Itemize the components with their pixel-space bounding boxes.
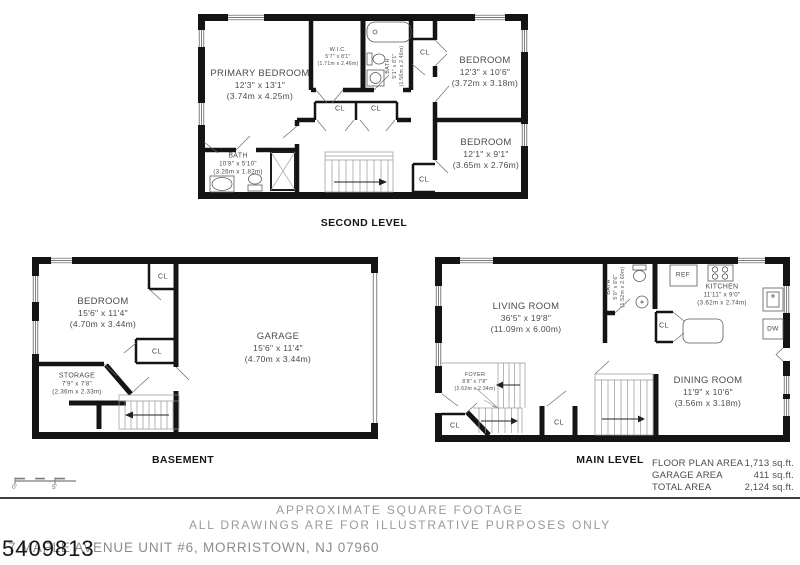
second-level-plan: PRIMARY BEDROOM 12'3" x 13'1" (3.74m x 4…	[198, 14, 528, 206]
room-label-storage: STORAGE 7'9" x 7'8" (2.36m x 2.33m)	[52, 371, 102, 396]
stairs-icon	[119, 395, 179, 429]
room-dim-ft: 12'3" x 10'6"	[452, 67, 518, 78]
doors	[442, 299, 684, 414]
room-name: BEDROOM	[453, 137, 519, 149]
room-label-garage: GARAGE 15'6" x 11'4" (4.70m x 3.44m)	[245, 331, 311, 365]
room-dim-m: (4.70m x 3.44m)	[245, 354, 311, 365]
room-label-bedroom: BEDROOM 15'6" x 11'4" (4.70m x 3.44m)	[70, 296, 136, 330]
room-label-bedroom-ne: BEDROOM 12'3" x 10'6" (3.72m x 3.18m)	[452, 55, 518, 89]
room-name: GARAGE	[245, 331, 311, 343]
room-name: LIVING ROOM	[491, 301, 562, 313]
outer-walls	[36, 261, 375, 436]
room-dim-m: (1.56m x 2.46m)	[399, 46, 406, 87]
closet-label: CL	[371, 106, 381, 113]
second-level-plan-drawing	[198, 14, 528, 206]
basement-title: BASEMENT	[83, 454, 283, 466]
room-name: FOYER	[455, 372, 496, 379]
area-label: TOTAL AREA	[652, 482, 711, 494]
room-dim-ft: 36'5" x 19'8"	[491, 313, 562, 324]
area-label: GARAGE AREA	[652, 470, 723, 482]
fridge-label: REF	[676, 272, 690, 279]
room-dim-m: (3.65m x 2.76m)	[453, 160, 519, 171]
area-row: GARAGE AREA 411 sq.ft.	[652, 470, 794, 482]
closet-label: CL	[158, 274, 168, 281]
room-dim-m: (3.72m x 3.18m)	[452, 78, 518, 89]
room-name: BATH	[606, 267, 613, 308]
room-dim-ft: 11'9" x 10'6"	[674, 387, 743, 398]
room-dim-ft: 7'9" x 7'8"	[52, 380, 102, 388]
area-row: FLOOR PLAN AREA 1,713 sq.ft.	[652, 458, 794, 470]
room-label-living-room: LIVING ROOM 36'5" x 19'8" (11.09m x 6.00…	[491, 301, 562, 335]
room-dim-ft: 12'3" x 13'1"	[210, 80, 309, 91]
footer-divider	[0, 497, 800, 499]
basement-plan-drawing	[32, 257, 378, 439]
room-name: KITCHEN	[697, 282, 747, 291]
main-level-plan: LIVING ROOM 36'5" x 19'8" (11.09m x 6.00…	[435, 257, 790, 442]
area-summary: FLOOR PLAN AREA 1,713 sq.ft. GARAGE AREA…	[652, 458, 794, 494]
area-value: 2,124 sq.ft.	[745, 482, 794, 494]
scale-five-label: 5'	[52, 484, 57, 491]
room-label-primary-bedroom: PRIMARY BEDROOM 12'3" x 13'1" (3.74m x 4…	[210, 68, 309, 102]
room-label-foyer: FOYER 8'8" x 7'8" (2.62m x 2.34m)	[455, 372, 496, 392]
room-dim-m: (3.56m x 3.18m)	[674, 398, 743, 409]
room-dim-m: (2.36m x 2.33m)	[52, 389, 102, 397]
room-label-bath-upper: BATH 5'1" x 8'1" (1.56m x 2.46m)	[385, 46, 405, 87]
dishwasher-label: DW	[767, 326, 779, 333]
floor-plan-sheet: PRIMARY BEDROOM 12'3" x 13'1" (3.74m x 4…	[0, 0, 800, 565]
garage-door	[371, 273, 378, 423]
room-name: BATH	[213, 151, 263, 160]
room-name: DINING ROOM	[674, 375, 743, 387]
area-row: TOTAL AREA 2,124 sq.ft.	[652, 482, 794, 494]
closet-label: CL	[659, 323, 669, 330]
basement-plan: BEDROOM 15'6" x 11'4" (4.70m x 3.44m) GA…	[32, 257, 378, 439]
room-dim-m: (1.71m x 2.46m)	[318, 61, 359, 68]
room-label-wic: W.I.C. 5'7" x 8'1" (1.71m x 2.46m)	[318, 47, 359, 67]
area-value: 411 sq.ft.	[754, 470, 794, 482]
room-dim-ft: 15'6" x 11'4"	[245, 343, 311, 354]
room-label-kitchen: KITCHEN 11'11" x 9'0" (3.62m x 2.74m)	[697, 282, 747, 307]
room-label-dining-room: DINING ROOM 11'9" x 10'6" (3.56m x 3.18m…	[674, 375, 743, 409]
closet-label: CL	[335, 106, 345, 113]
room-dim-ft: 10'8" x 5'10"	[213, 160, 263, 168]
room-dim-m: (3.26m x 1.82m)	[213, 169, 263, 177]
room-label-bedroom-se: BEDROOM 12'1" x 9'1" (3.65m x 2.76m)	[453, 137, 519, 171]
room-name: PRIMARY BEDROOM	[210, 68, 309, 80]
scale-zero-label: 0'	[12, 484, 17, 491]
disclaimer-line-1: APPROXIMATE SQUARE FOOTAGE	[0, 503, 800, 517]
second-level-title: SECOND LEVEL	[264, 217, 464, 229]
room-name: W.I.C.	[318, 47, 359, 54]
room-dim-ft: 12'1" x 9'1"	[453, 149, 519, 160]
closet-label: CL	[450, 423, 460, 430]
room-dim-m: (1.52m x 2.60m)	[620, 267, 627, 308]
room-name: BEDROOM	[70, 296, 136, 308]
watermark-number: 5409813	[2, 536, 95, 562]
area-value: 1,713 sq.ft.	[745, 458, 794, 470]
room-label-bath-sw: BATH 10'8" x 5'10" (3.26m x 1.82m)	[213, 151, 263, 176]
room-dim-m: (4.70m x 3.44m)	[70, 319, 136, 330]
room-dim-m: (3.62m x 2.74m)	[697, 300, 747, 308]
room-label-bath: BATH 5'0" x 8'6" (1.52m x 2.60m)	[606, 267, 626, 308]
area-label: FLOOR PLAN AREA	[652, 458, 743, 470]
room-name: STORAGE	[52, 371, 102, 380]
closet-label: CL	[419, 177, 429, 184]
room-dim-ft: 11'11" x 9'0"	[697, 291, 747, 299]
room-dim-ft: 15'6" x 11'4"	[70, 308, 136, 319]
stairs-icon	[325, 152, 393, 192]
disclaimer-line-2: ALL DRAWINGS ARE FOR ILLUSTRATIVE PURPOS…	[0, 518, 800, 532]
room-dim-m: (3.74m x 4.25m)	[210, 91, 309, 102]
closet-label: CL	[420, 50, 430, 57]
room-name: BEDROOM	[452, 55, 518, 67]
closet-label: CL	[152, 349, 162, 356]
room-name: BATH	[385, 46, 392, 87]
room-dim-m: (11.09m x 6.00m)	[491, 324, 562, 335]
bath-fixtures	[633, 265, 648, 308]
room-dim-m: (2.62m x 2.34m)	[455, 386, 496, 393]
closet-label: CL	[554, 420, 564, 427]
